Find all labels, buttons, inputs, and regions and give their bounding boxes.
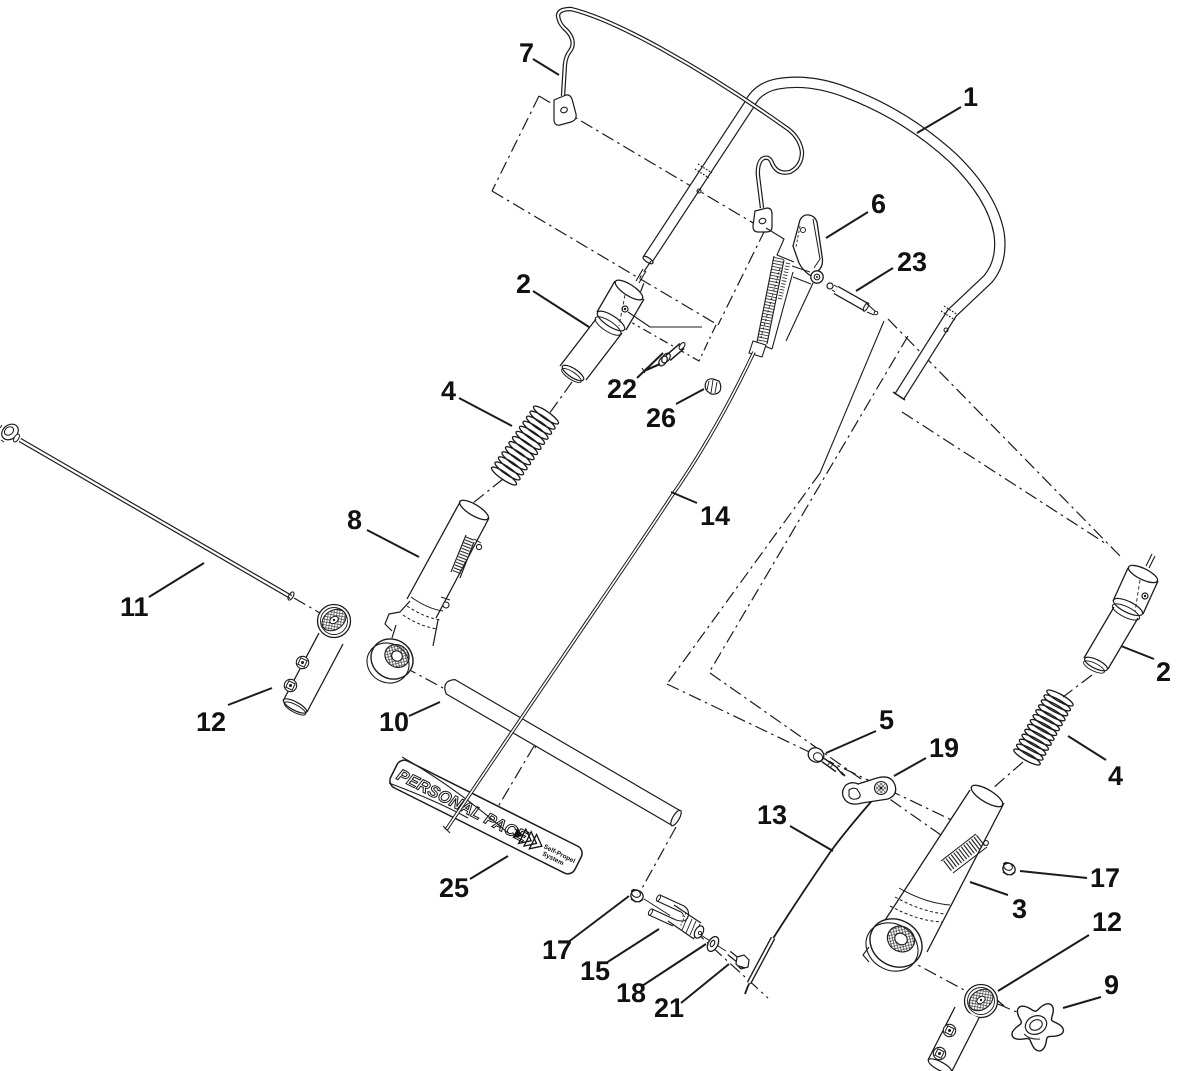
svg-text:12: 12 bbox=[1092, 907, 1122, 937]
svg-text:17: 17 bbox=[1090, 863, 1120, 893]
svg-text:6: 6 bbox=[871, 189, 886, 219]
svg-text:19: 19 bbox=[929, 733, 959, 763]
svg-text:3: 3 bbox=[1012, 894, 1027, 924]
svg-text:4: 4 bbox=[441, 376, 456, 406]
svg-text:5: 5 bbox=[879, 705, 894, 735]
svg-text:26: 26 bbox=[646, 403, 676, 433]
svg-text:22: 22 bbox=[607, 374, 637, 404]
svg-text:2: 2 bbox=[1156, 657, 1171, 687]
svg-text:4: 4 bbox=[1108, 761, 1123, 791]
svg-text:18: 18 bbox=[616, 978, 646, 1008]
svg-text:10: 10 bbox=[379, 707, 409, 737]
svg-text:1: 1 bbox=[963, 82, 978, 112]
svg-text:12: 12 bbox=[196, 707, 226, 737]
svg-text:14: 14 bbox=[700, 501, 730, 531]
svg-text:11: 11 bbox=[120, 592, 149, 622]
svg-text:17: 17 bbox=[542, 935, 572, 965]
svg-text:7: 7 bbox=[519, 38, 534, 68]
svg-text:23: 23 bbox=[897, 247, 927, 277]
svg-text:9: 9 bbox=[1104, 970, 1119, 1000]
svg-text:21: 21 bbox=[654, 993, 684, 1023]
svg-text:25: 25 bbox=[439, 873, 469, 903]
svg-text:15: 15 bbox=[580, 956, 610, 986]
svg-text:13: 13 bbox=[757, 800, 787, 830]
svg-text:8: 8 bbox=[347, 505, 362, 535]
svg-text:2: 2 bbox=[516, 269, 531, 299]
